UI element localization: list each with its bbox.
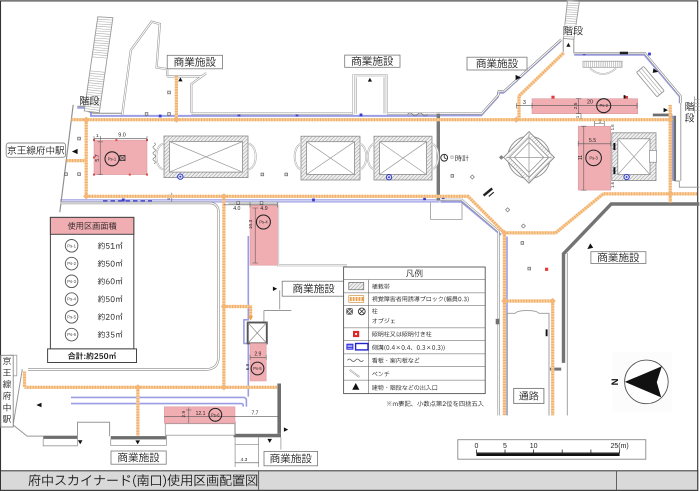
svg-text:5: 5 [503,443,507,450]
svg-text:Ps-6: Ps-6 [211,412,220,417]
svg-text:Ps-1: Ps-1 [67,243,76,248]
svg-text:Ps-5: Ps-5 [67,314,76,319]
svg-text:Ps-4: Ps-4 [67,297,76,302]
svg-text:4.9: 4.9 [260,206,267,212]
svg-text:10: 10 [530,443,538,450]
svg-text:1.6: 1.6 [610,124,615,130]
svg-text:25(m): 25(m) [610,443,628,450]
svg-text:12.1: 12.1 [196,411,206,417]
svg-text:Ps-1: Ps-1 [108,156,117,161]
svg-text:Ps-3: Ps-3 [67,279,76,284]
svg-text:2.9: 2.9 [181,411,187,418]
svg-text:Ps-3: Ps-3 [589,155,598,160]
svg-text:2.9: 2.9 [254,352,261,358]
svg-text:20: 20 [587,99,593,105]
svg-text:10.3: 10.3 [248,220,254,230]
svg-text:7.7: 7.7 [252,411,259,417]
svg-text:Ps-5: Ps-5 [253,366,262,371]
svg-text:9.0: 9.0 [118,133,126,139]
svg-text:1: 1 [96,133,99,139]
svg-text:N: N [610,378,621,385]
svg-text:5.5: 5.5 [589,138,596,144]
svg-text:0: 0 [474,443,478,450]
svg-text:1.6: 1.6 [610,181,615,187]
svg-text:Ps-2: Ps-2 [599,103,608,108]
svg-text:Ps-4: Ps-4 [259,219,268,224]
svg-text:Ps-2: Ps-2 [67,261,76,266]
svg-text:4.3: 4.3 [241,457,248,463]
svg-text:3: 3 [523,100,526,106]
svg-text:2.5: 2.5 [573,102,579,109]
svg-text:6.9: 6.9 [245,363,250,370]
svg-text:5.7: 5.7 [95,154,101,161]
svg-text:Ps-6: Ps-6 [67,332,76,337]
svg-text:4.0: 4.0 [233,206,240,212]
svg-text:11: 11 [578,155,584,160]
